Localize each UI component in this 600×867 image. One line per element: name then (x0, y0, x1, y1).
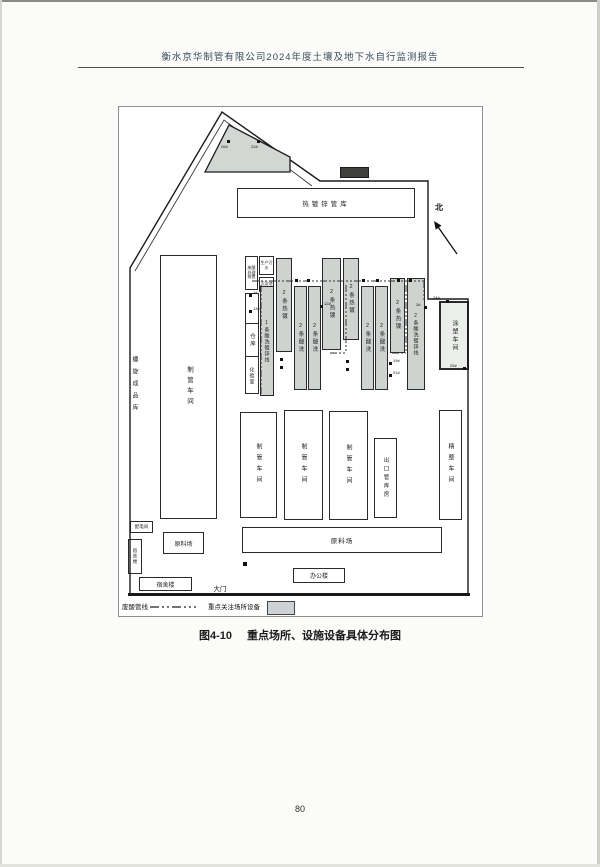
line-strip-1-label: 2条热镀 (280, 290, 288, 321)
line-strip-0-label: 1条酸洗镀锌线 (264, 320, 271, 363)
line-strip-6-label: 2条酸洗 (364, 323, 372, 354)
building-pipe-workshop-3: 制管车间 (329, 411, 368, 520)
line-strip-9-label: 2条酸洗镀锌线 (413, 313, 420, 356)
point-dot-j (346, 368, 349, 371)
building-lab: 化验室 (246, 356, 258, 395)
line-strip-3-label: 2条酸洗 (311, 323, 319, 354)
line-strip-5: 2条热镀 (343, 258, 359, 340)
point-label-2: 2# (416, 303, 420, 307)
line-strip-0: 1条酸洗镀锌线 (260, 286, 274, 396)
scan-edge-top (0, 0, 600, 2)
export-pipe-store-label: 出口管库房 (382, 457, 390, 500)
point-label-22: 22# (251, 145, 258, 149)
figure-caption-number: 图4-10 (199, 630, 232, 642)
line-strip-8-label: 2条热镀 (394, 300, 402, 331)
coating-workshop-label: 涂塑车间 (450, 320, 458, 352)
line-strip-7: 2条酸洗 (375, 286, 388, 390)
point-dot-d (376, 279, 379, 282)
building-pipe-workshop-1: 制管车间 (240, 412, 277, 518)
legend-pipeline-label: 废酸管线 (122, 601, 148, 611)
building-dorm-large: 宿舍楼 (139, 577, 192, 591)
building-power-room: 配电间 (130, 521, 153, 533)
point-dot-2 (424, 306, 427, 309)
point-dot-1 (249, 294, 252, 297)
dorm-small-label: 宿舍楼 (132, 548, 138, 565)
building-pipe-workshop-2: 制管车间 (284, 410, 323, 520)
report-page: 衡水京华制管有限公司2024年度土壤及地下水自行监测报告 喷漆车间 热镀锌管库 … (0, 0, 600, 867)
legend-highlight-label: 重点关注场所设备 (208, 601, 260, 611)
pipe-workshop-3-label: 制管车间 (344, 444, 353, 488)
scan-edge-left (0, 0, 2, 867)
point-dot-25 (463, 367, 466, 370)
point-dot-22 (257, 140, 260, 143)
line-strip-8: 2条热镀 (390, 278, 405, 353)
point-dot-office (243, 562, 247, 566)
point-dot-f (409, 279, 412, 282)
point-dot-h (280, 366, 283, 369)
page-header: 衡水京华制管有限公司2024年度土壤及地下水自行监测报告 (0, 49, 600, 63)
warehouse-label: 仓库 (248, 333, 256, 348)
finishing-workshop-label: 精整车间 (446, 443, 455, 487)
point-dot-24 (446, 300, 449, 303)
building-finishing-workshop: 精整车间 (439, 410, 462, 520)
lab-label: 化验室 (249, 367, 256, 385)
line-strip-2-label: 2条酸洗 (297, 323, 305, 354)
building-dorm-small: 宿舍楼 (128, 539, 142, 574)
pipe-workshop-main-label: 制管车间 (184, 366, 194, 408)
point-label-26: 26# (221, 145, 228, 149)
spray-workshop-label: 喷漆车间 (208, 133, 260, 141)
point-label-25: 25# (450, 364, 457, 368)
page-number: 80 (0, 804, 600, 814)
line-strip-7-label: 2条酸洗 (378, 323, 386, 354)
point-dot-19 (389, 362, 392, 365)
point-dot-c (362, 279, 365, 282)
point-dot-b (307, 279, 310, 282)
point-dot-13 (249, 310, 252, 313)
building-galvanized-pipe-warehouse: 热镀锌管库 (237, 188, 415, 218)
point-dot-12 (320, 305, 323, 308)
point-label-21: 21# (393, 371, 400, 375)
point-label-24: 24# (433, 296, 440, 300)
header-rule (78, 67, 524, 68)
legend-highlight-swatch (267, 601, 295, 615)
line-strip-5-label: 2条热镀 (347, 284, 355, 315)
boundary-marker-box (340, 167, 369, 178)
point-dot-21 (389, 374, 392, 377)
point-label-19: 19# (393, 359, 400, 363)
point-dot-a (295, 279, 298, 282)
point-dot-i (346, 360, 349, 363)
building-pipe-workshop-main: 制管车间 (160, 255, 217, 519)
point-label-1: 1# (253, 291, 257, 295)
point-dot-26 (227, 140, 230, 143)
point-label-12: 12# (324, 302, 331, 306)
line-strip-9: 2条酸洗镀锌线 (407, 278, 425, 390)
building-material-yard-long: 原料场 (242, 527, 442, 553)
building-production-sewage: 生产污水 (259, 256, 274, 275)
line-strip-2: 2条酸洗 (294, 286, 307, 390)
building-warehouse: 仓库 (246, 323, 258, 356)
figure-caption-title: 重点场所、设施设备具体分布图 (247, 630, 401, 642)
line-strip-1: 2条热镀 (276, 258, 292, 352)
pipe-workshop-2-label: 制管车间 (299, 443, 308, 487)
building-export-pipe-store: 出口管库房 (374, 438, 397, 518)
point-dot-e (397, 279, 400, 282)
building-spiral-product-store: 螺旋成品库 (130, 356, 139, 448)
line-strip-6: 2条酸洗 (361, 286, 374, 390)
line-strip-3: 2条酸洗 (308, 286, 321, 390)
point-dot-g (280, 358, 283, 361)
pipe-workshop-1-label: 制管车间 (254, 443, 263, 487)
gate-label: 大门 (200, 583, 240, 593)
building-coating-workshop: 涂塑车间 (439, 301, 469, 370)
point-label-13: 13# (253, 307, 260, 311)
building-waste-acid-treatment: 废酸处理装置 (245, 256, 258, 290)
north-label: 北 (435, 202, 443, 213)
building-office: 办公楼 (293, 568, 345, 583)
figure-caption: 图4-10 重点场所、设施设备具体分布图 (0, 627, 600, 643)
building-material-yard-small: 原料场 (163, 532, 204, 554)
